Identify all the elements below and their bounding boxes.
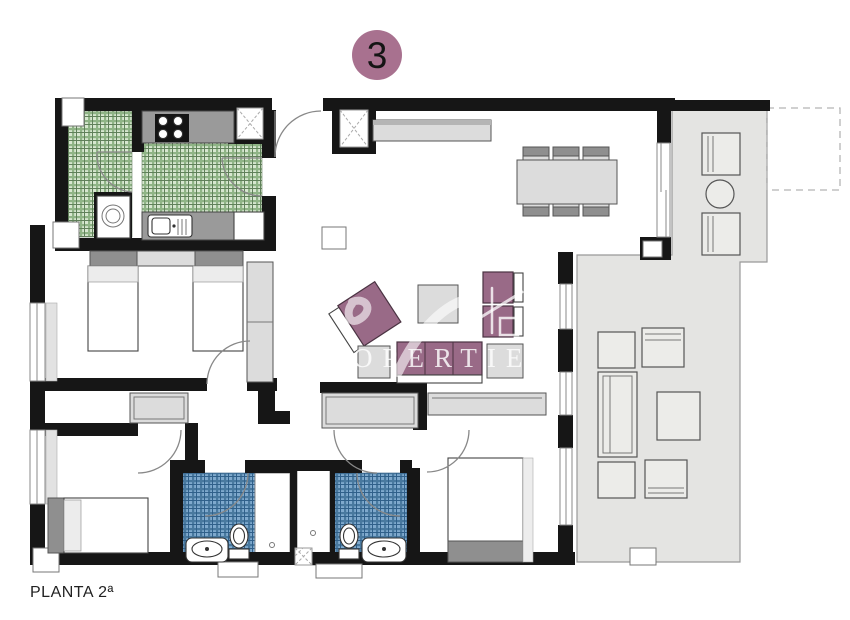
terrace-armchair-2: [645, 460, 687, 498]
dining-room: [373, 120, 617, 216]
wall-living-terrace-3: [558, 415, 573, 448]
double-bed-headboard: [448, 541, 523, 562]
wall-bathroom2-right: [407, 468, 420, 565]
sink-basin: [152, 218, 170, 234]
bedroom1-curtain: [46, 303, 57, 381]
dining-slider-window: [657, 143, 670, 237]
bath1-vanity-unit: [218, 562, 258, 577]
bedroom3-wardrobe: [428, 393, 546, 415]
bath2-toilet-tank: [339, 549, 359, 559]
kitchen-floor: [142, 143, 262, 212]
bed-side-strip: [523, 458, 533, 562]
wall-shower2-right: [330, 465, 335, 565]
floor-plan-canvas: PROPERTIES 3 PLANTA 2ª: [0, 0, 850, 620]
bed2-pillow: [193, 266, 243, 282]
wall-bath2-top-b: [400, 460, 412, 473]
sun-lounger: [598, 372, 637, 457]
floor-number: 3: [367, 35, 388, 76]
floorplan-page: PROPERTIES 3 PLANTA 2ª: [0, 0, 850, 620]
wall-bathroom1-left: [170, 460, 183, 565]
wall-left-1: [30, 225, 45, 305]
wall-dining-right-upper: [657, 111, 671, 143]
bed1-pillow: [88, 266, 138, 282]
wall-corridor-post: [185, 423, 198, 465]
wall-living-terrace-1: [558, 252, 573, 284]
wall-above-wardrobe: [320, 382, 420, 393]
bath2-vanity-unit: [316, 564, 362, 578]
corner-box-gallery: [53, 222, 79, 248]
bath1-toilet-seat: [234, 528, 245, 544]
bed3-pillow: [64, 500, 81, 551]
bath2-toilet-seat: [344, 528, 355, 544]
bath2-basin-drain-icon: [382, 547, 386, 551]
column: [322, 227, 346, 249]
bath1-toilet-tank: [229, 549, 249, 559]
corner-box-topleft: [62, 98, 84, 126]
wall-living-terrace-2: [558, 329, 573, 372]
dining-chair-back: [523, 207, 549, 216]
dining-chair-back: [553, 207, 579, 216]
plan-label: PLANTA 2ª: [30, 584, 114, 601]
kitchen-cabinet: [234, 212, 264, 240]
armchair-1-seat: [483, 272, 513, 303]
wall-bath1-top-b: [245, 460, 292, 473]
sink-faucet-icon: [172, 224, 175, 227]
wall-terrace-top: [675, 100, 770, 111]
dining-chair-back: [553, 147, 579, 156]
corridor-wardrobe-right: [322, 393, 418, 428]
dining-chair-back: [583, 147, 609, 156]
wall-bath1-top-a: [178, 460, 205, 473]
stove-burner-icon: [173, 129, 182, 138]
nightstand-shelf: [137, 251, 195, 266]
bath1-basin-drain-icon: [205, 547, 209, 551]
bed3-headboard: [48, 498, 64, 553]
terrace-table: [657, 392, 700, 440]
dining-chair-back: [523, 147, 549, 156]
sideboard-edge: [373, 120, 491, 125]
bed2-headboard: [195, 251, 243, 266]
bedroom-2: [48, 498, 148, 553]
bedroom-3: [428, 393, 546, 562]
sofa-front: [397, 375, 482, 383]
stove-burner-icon: [158, 116, 167, 125]
dining-chair-back: [583, 207, 609, 216]
wall-bedroom1-bottom: [42, 378, 207, 391]
entrance-door-arc: [275, 111, 321, 157]
bathroom1-shower: [255, 473, 290, 563]
terrace-stool-2: [598, 462, 635, 498]
corner-box-dining: [643, 241, 662, 257]
stove-burner-icon: [158, 129, 167, 138]
wall-bedroom3-terrace: [558, 525, 573, 565]
watermark-text: PROPERTIES: [300, 343, 557, 373]
terrace-round-table: [706, 180, 734, 208]
terrace-stool-1: [598, 332, 635, 368]
bed1-headboard: [90, 251, 137, 266]
armchair-2-seat: [483, 306, 513, 337]
bedroom2-curtain: [46, 430, 57, 504]
wall-corridor-chunk-h: [258, 411, 290, 424]
dining-table: [517, 160, 617, 204]
stove-burner-icon: [173, 116, 182, 125]
bedroom-1: [88, 251, 273, 382]
terrace-notch: [630, 548, 656, 565]
terrace-expansion-dashed-outline: [767, 108, 840, 190]
